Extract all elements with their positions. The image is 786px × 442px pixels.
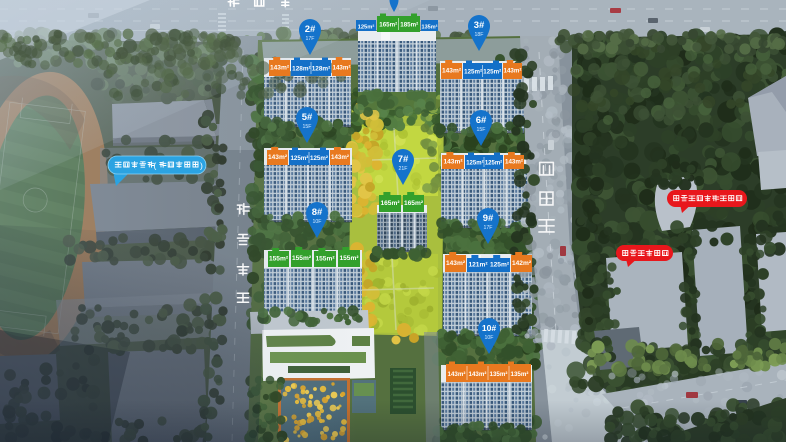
svg-text:3#: 3#: [474, 20, 485, 31]
svg-text:143m²: 143m²: [331, 154, 349, 161]
svg-text:17F: 17F: [306, 36, 315, 42]
svg-text:142m²: 142m²: [512, 260, 532, 267]
svg-text:135m²: 135m²: [422, 23, 438, 30]
svg-text:5#: 5#: [302, 112, 313, 123]
svg-text:18F: 18F: [475, 32, 484, 38]
svg-text:143m²: 143m²: [268, 154, 288, 161]
svg-text:125m²: 125m²: [466, 160, 483, 167]
svg-text:143m²: 143m²: [448, 371, 466, 378]
svg-text:143m²: 143m²: [270, 64, 290, 71]
svg-text:125m²: 125m²: [483, 69, 501, 76]
svg-text:10#: 10#: [482, 323, 497, 333]
svg-text:165m²: 165m²: [379, 22, 397, 29]
svg-text:125m²: 125m²: [485, 160, 502, 167]
svg-text:155m²: 155m²: [315, 255, 335, 262]
svg-text:143m²: 143m²: [505, 158, 523, 165]
svg-text:155m²: 155m²: [269, 255, 289, 262]
svg-text:121m²: 121m²: [468, 261, 488, 268]
svg-text:125m²: 125m²: [310, 155, 328, 162]
svg-text:9#: 9#: [483, 213, 494, 224]
svg-text:125m²: 125m²: [464, 69, 482, 76]
svg-text:143m²: 143m²: [333, 64, 351, 71]
svg-text:15F: 15F: [303, 124, 312, 130]
svg-text:6#: 6#: [476, 115, 487, 126]
svg-text:155m²: 155m²: [292, 255, 312, 262]
svg-text:128m²: 128m²: [292, 66, 310, 73]
svg-text:125m²: 125m²: [490, 261, 510, 268]
svg-text:143m²: 143m²: [504, 67, 522, 74]
svg-text:135m²: 135m²: [511, 371, 529, 378]
svg-text:128m²: 128m²: [312, 66, 330, 73]
svg-text:8#: 8#: [312, 207, 323, 218]
svg-text:165m²: 165m²: [404, 200, 424, 207]
svg-text:143m²: 143m²: [443, 158, 463, 165]
svg-text:135m²: 135m²: [490, 371, 508, 378]
svg-text:155m²: 155m²: [339, 255, 359, 262]
svg-text:10F: 10F: [485, 335, 494, 341]
svg-text:): ): [200, 161, 203, 171]
svg-text:143m²: 143m²: [446, 260, 466, 267]
svg-text:21F: 21F: [399, 166, 408, 172]
svg-text:10F: 10F: [313, 219, 322, 225]
svg-text:125m²: 125m²: [358, 23, 375, 30]
svg-text:143m²: 143m²: [469, 371, 487, 378]
svg-text:165m²: 165m²: [380, 200, 400, 207]
svg-text:143m²: 143m²: [442, 67, 462, 74]
svg-text:125m²: 125m²: [290, 155, 308, 162]
svg-text:15F: 15F: [477, 127, 486, 133]
svg-text:2#: 2#: [305, 24, 316, 35]
svg-text:17F: 17F: [484, 225, 493, 231]
svg-text:(: (: [154, 161, 157, 171]
svg-text:7#: 7#: [398, 154, 409, 165]
svg-text:185m²: 185m²: [400, 22, 418, 29]
